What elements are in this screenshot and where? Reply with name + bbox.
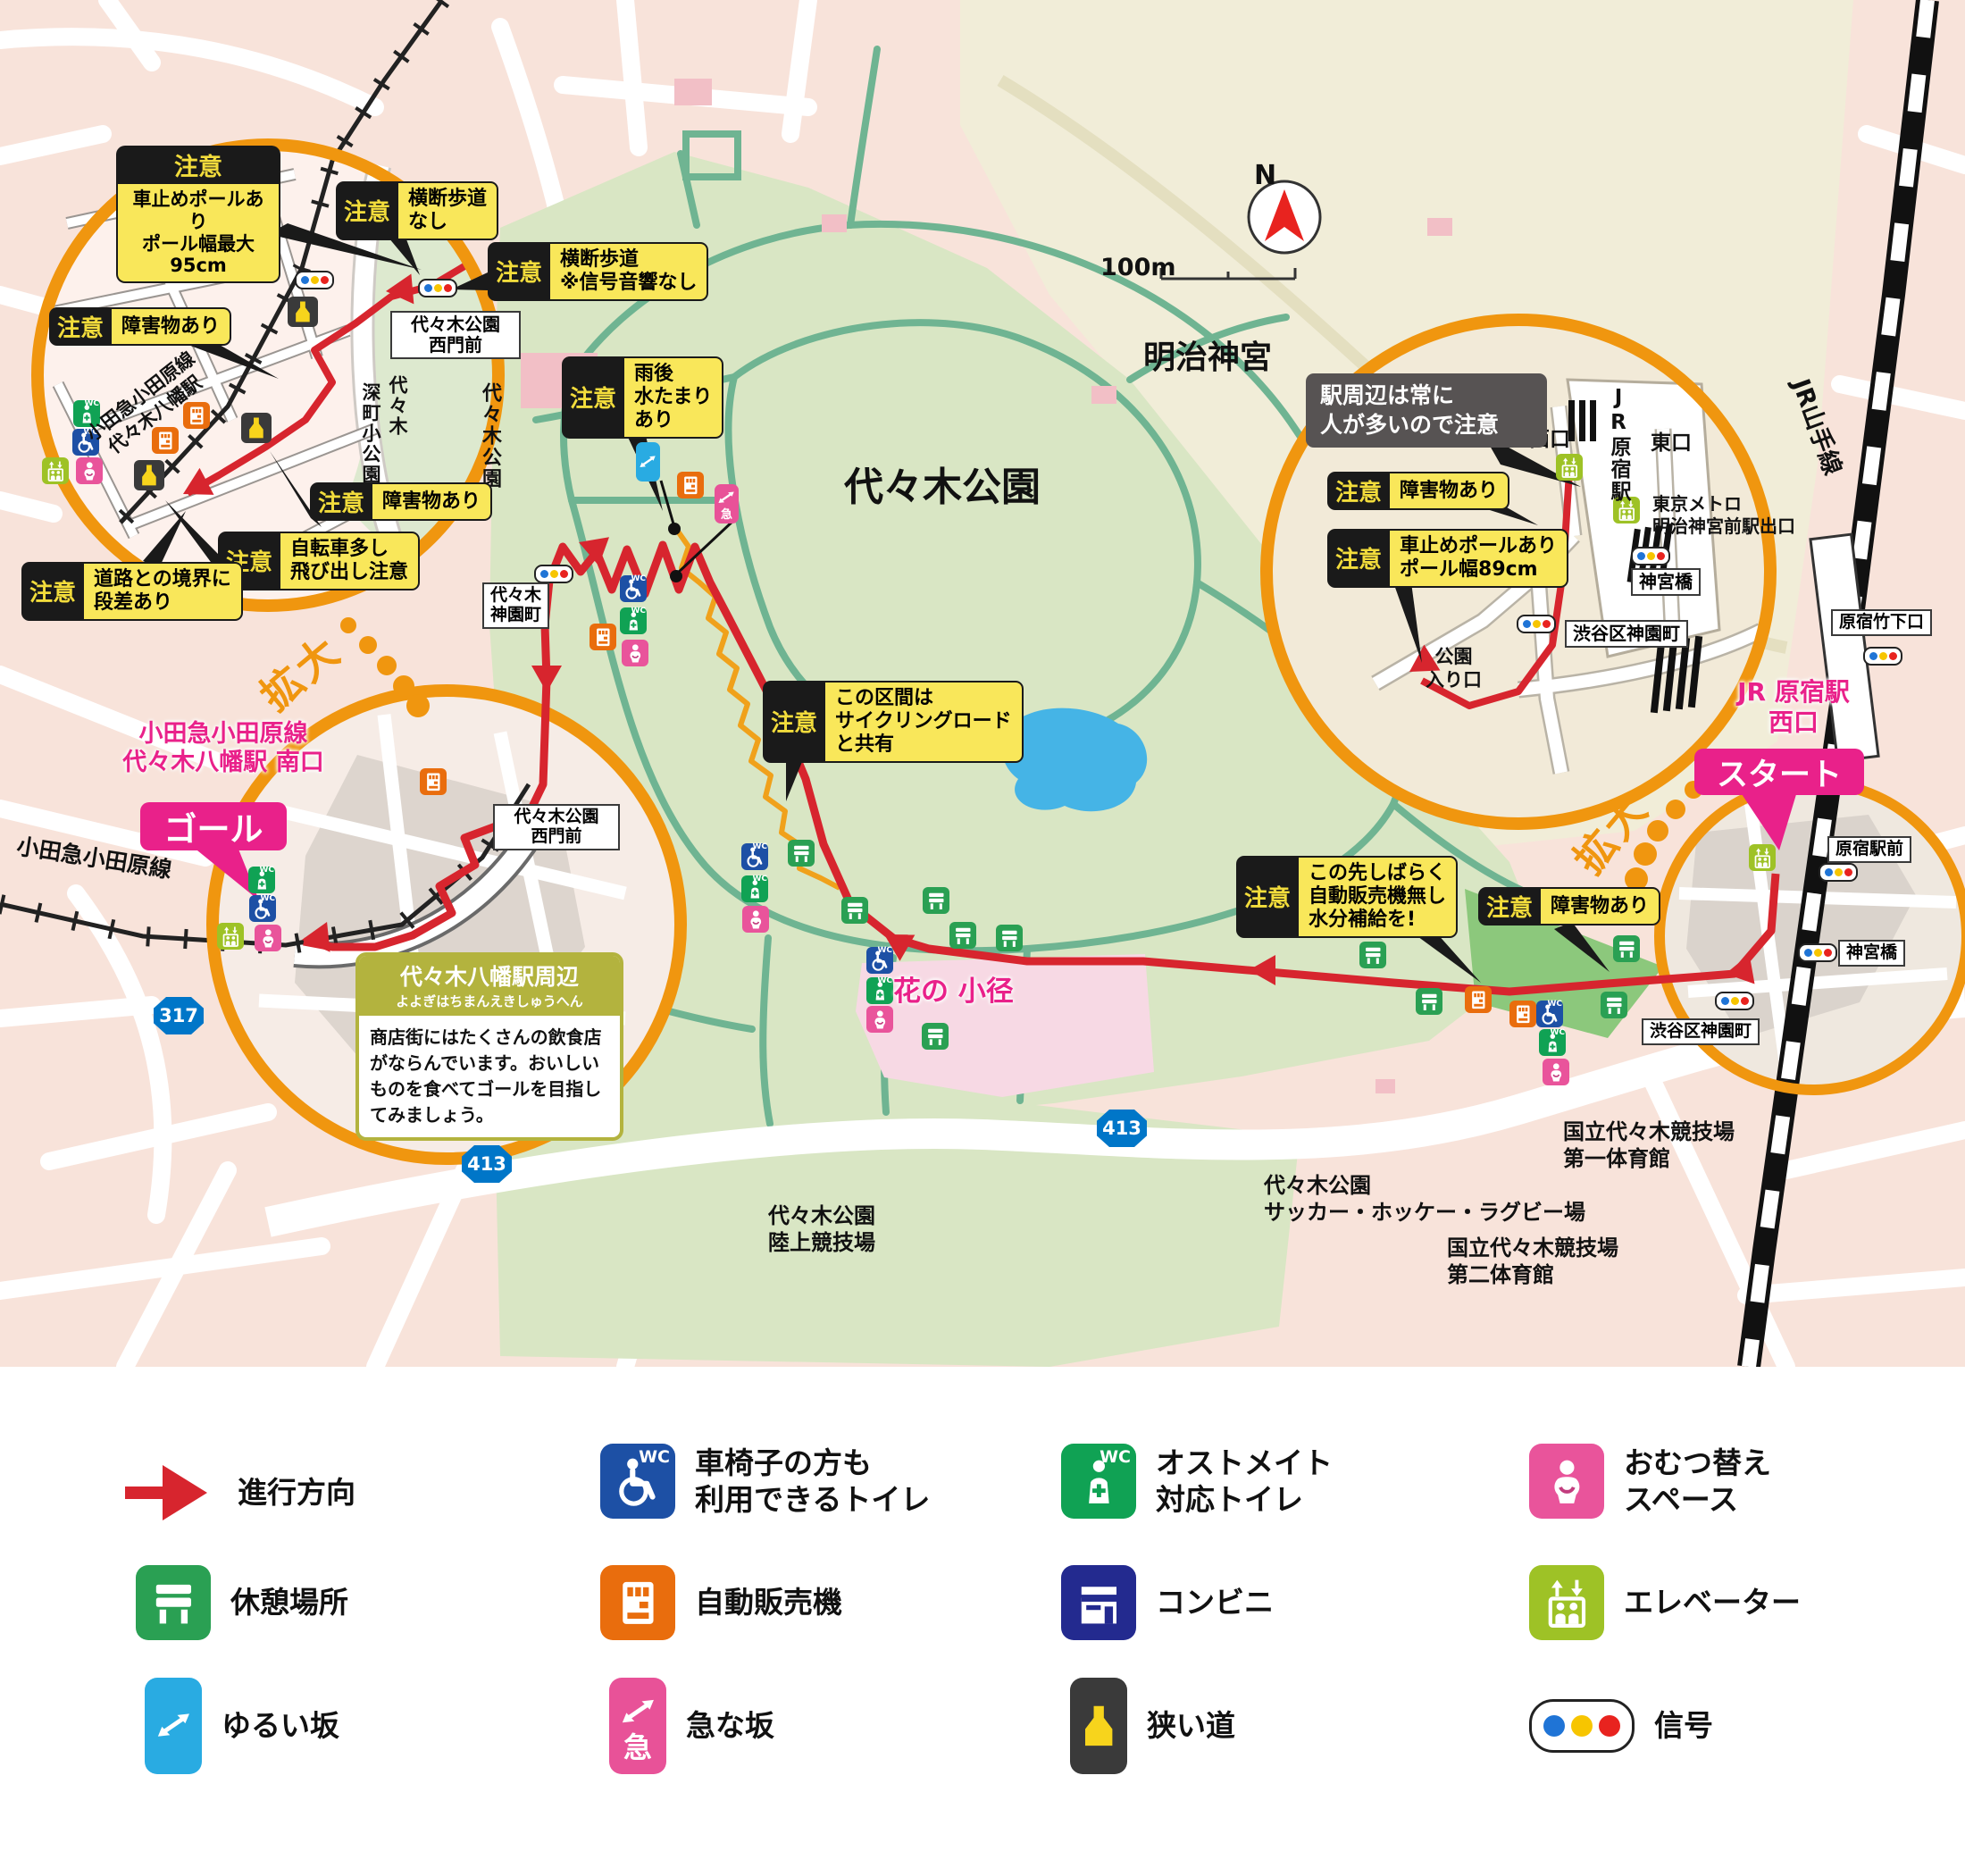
wheelchair-toilet-icon: WC: [741, 843, 768, 870]
vending-machine-icon: [600, 1565, 675, 1640]
jingubashi-box-main: 神宮橋: [1838, 940, 1905, 967]
note-no-crosswalk: 注意 横断歩道 なし: [336, 181, 498, 240]
legend-diaper-space: おむつ替え スペース: [1529, 1444, 1771, 1519]
note-obstacle-left-2: 注意 障害物あり: [310, 482, 492, 521]
vending-machine-icon: [1465, 986, 1492, 1013]
vending-machine-icon: [677, 472, 704, 498]
start-station-label: JR 原宿駅 西口: [1724, 677, 1863, 737]
diaper-space-icon: [76, 457, 103, 484]
legend-wheelchair-toilet: WC 車椅子の方も 利用できるトイレ: [600, 1444, 930, 1519]
rest-area-icon: [996, 925, 1023, 951]
narrow-road-icon: [288, 297, 318, 327]
legend-ostomate-toilet: WC オストメイト 対応トイレ: [1061, 1444, 1333, 1519]
rest-area-icon: [1601, 992, 1627, 1018]
elevator-icon: [1749, 844, 1776, 871]
rest-area-icon: [136, 1565, 211, 1640]
note-no-vending: 注意 この先しばらく 自動販売機無し 水分補給を!: [1236, 856, 1458, 938]
narrow-road-icon: [241, 413, 272, 443]
steep-slope-icon: 急: [715, 484, 739, 523]
note-road-step: 注意 道路との境界に 段差あり: [21, 562, 243, 621]
legend-convenience: コンビニ: [1061, 1565, 1274, 1640]
steep-slope-icon: 急: [609, 1678, 666, 1774]
compass-north-label: N: [1254, 159, 1276, 193]
takeshita-exit-box: 原宿竹下口: [1831, 609, 1932, 636]
legend-steep-slope: 急 急な坂: [609, 1678, 774, 1774]
shibuya-kamizono-box-main: 渋谷区神園町: [1642, 1018, 1760, 1045]
legend-rest-area: 休憩場所: [136, 1565, 348, 1640]
info-kana: よよぎはちまんえきしゅうへん: [361, 992, 618, 1010]
traffic-signal-icon: [1863, 647, 1902, 666]
traffic-signal-icon: [534, 565, 573, 583]
yoyogi-hachiman-info-box: 代々木八幡駅周辺 よよぎはちまんえきしゅうへん 商店街にはたくさんの飲食店がなら…: [355, 952, 623, 1141]
vending-machine-icon: [183, 402, 210, 429]
yoyogi-fukamachi-label-1: 代々木: [384, 375, 411, 437]
yoyogi-park-side-label: 代々木公園: [475, 382, 504, 490]
crowd-warning-box: 駅周辺は常に 人が多いので注意: [1306, 373, 1547, 448]
legend-elevator: エレベーター: [1529, 1565, 1801, 1640]
info-body: 商店街にはたくさんの飲食店がならんでいます。おいしいものを食べてゴールを目指して…: [359, 1016, 620, 1137]
gym1-label: 国立代々木競技場 第一体育館: [1563, 1118, 1735, 1172]
diaper-space-icon: [866, 1006, 893, 1033]
traffic-signal-icon: [1715, 992, 1754, 1010]
yoyogi-fukamachi-label-2: 深町小公園: [357, 382, 384, 485]
shibuya-kamizono-box-circle: 渋谷区神園町: [1565, 620, 1688, 648]
soccer-field-label: 代々木公園 サッカー・ホッケー・ラグビー場: [1264, 1172, 1585, 1226]
diaper-space-icon: [255, 925, 281, 951]
goal-station-label: 小田急小田原線 代々木八幡駅 南口: [100, 720, 347, 778]
note-obstacle-left-1: 注意 障害物あり: [49, 307, 231, 346]
jingubashi-box-circle: 神宮橋: [1631, 568, 1701, 596]
legend-narrow-road: 狭い道: [1070, 1678, 1235, 1774]
traffic-signal-icon: [1819, 863, 1858, 882]
note-bicycles: 注意 自転車多し 飛び出し注意: [218, 532, 420, 590]
legend-signal: 信号: [1529, 1699, 1713, 1753]
route-413-shield-east: 413: [1097, 1110, 1147, 1147]
tokyo-metro-exit-label: 東京メトロ 明治神宮前駅出口: [1652, 493, 1795, 538]
goal-box: ゴール: [140, 802, 287, 850]
vending-machine-icon: [1509, 1001, 1536, 1027]
traffic-signal-icon: [1529, 1699, 1635, 1753]
note-obstacle-main: 注意 障害物あり: [1478, 887, 1660, 925]
narrow-road-icon: [1070, 1678, 1127, 1774]
barrier-free-route-map: N 100m 明治神宮 代々木公園 JR山手線 小田急小田原線 花の 小径 代々…: [0, 0, 1965, 1876]
yoyogi-kamizono-box: 代々木 神園町: [482, 582, 549, 629]
park-entrance-label: 公園 入り口: [1426, 645, 1482, 692]
elevator-icon: [42, 457, 69, 484]
ostomate-toilet-icon: WC: [248, 867, 275, 893]
vending-machine-icon: [420, 768, 447, 795]
rest-area-icon: [841, 897, 868, 924]
direction-arrow-icon: [125, 1465, 218, 1520]
harajuku-ekimae-box: 原宿駅前: [1827, 836, 1911, 863]
ostomate-toilet-icon: WC: [1061, 1444, 1136, 1519]
rest-area-icon: [949, 922, 976, 949]
ostomate-toilet-icon: WC: [1539, 1029, 1566, 1056]
info-title: 代々木八幡駅周辺: [361, 959, 618, 992]
rest-area-icon: [1416, 988, 1442, 1015]
traffic-signal-icon: [418, 279, 457, 297]
diaper-space-icon: [622, 640, 648, 666]
east-exit-label: 東口: [1651, 431, 1692, 456]
gym2-label: 国立代々木競技場 第二体育館: [1447, 1235, 1618, 1288]
wheelchair-toilet-icon: WC: [866, 947, 893, 974]
note-puddle: 注意 雨後 水たまり あり: [562, 356, 723, 439]
ostomate-toilet-icon: WC: [741, 875, 768, 902]
rest-area-icon: [922, 1023, 949, 1050]
legend-vending: 自動販売機: [600, 1565, 842, 1640]
flower-path-label: 花の 小径: [893, 976, 1014, 1009]
meiji-jingu-label: 明治神宮: [1143, 338, 1272, 378]
rest-area-icon: [788, 840, 815, 867]
nishimon-gate-box-main: 代々木公園 西門前: [493, 804, 620, 850]
traffic-signal-icon: [1631, 547, 1670, 565]
ostomate-toilet-icon: WC: [866, 977, 893, 1004]
diaper-space-icon: [1543, 1059, 1569, 1085]
scale-label: 100m: [1100, 253, 1176, 283]
wheelchair-toilet-icon: WC: [620, 575, 647, 602]
gentle-slope-icon: [636, 442, 660, 482]
route-317-shield: 317: [154, 997, 204, 1034]
note-crosswalk-no-sound: 注意 横断歩道 ※信号音響なし: [488, 242, 708, 301]
wheelchair-toilet-icon: WC: [249, 895, 276, 922]
traffic-signal-icon: [1517, 615, 1556, 633]
diaper-space-icon: [742, 906, 769, 933]
note-cycling-road: 注意 この区間は サイクリングロード と共有: [763, 681, 1024, 763]
note-obstacle-right-circle: 注意 障害物あり: [1327, 472, 1509, 510]
rest-area-icon: [1359, 942, 1386, 968]
wheelchair-toilet-icon: WC: [1536, 1001, 1563, 1027]
diaper-space-icon: [1529, 1444, 1604, 1519]
narrow-road-icon: [134, 460, 164, 490]
wheelchair-toilet-icon: WC: [600, 1444, 675, 1519]
note-car-stop-pole-95: 注意 車止めポールあり ポール幅最大95cm: [116, 146, 280, 283]
traffic-signal-icon: [295, 271, 334, 289]
nishimon-gate-box-circle: 代々木公園 西門前: [390, 311, 521, 359]
elevator-icon: [1556, 454, 1583, 481]
yoyogi-park-label: 代々木公園: [844, 463, 1041, 512]
vending-machine-icon: [589, 624, 616, 650]
start-box: スタート: [1694, 749, 1864, 795]
ostomate-toilet-icon: WC: [620, 607, 647, 634]
vending-machine-icon: [152, 427, 179, 454]
traffic-signal-icon: [1798, 943, 1837, 962]
elevator-icon: [217, 923, 244, 950]
legend-gentle-slope: ゆるい坂: [145, 1678, 339, 1774]
convenience-store-icon: [1061, 1565, 1136, 1640]
gentle-slope-icon: [145, 1678, 202, 1774]
jr-harajuku-station-label: JR原宿駅: [1603, 386, 1634, 503]
route-413-shield-west: 413: [462, 1145, 512, 1183]
rest-area-icon: [1613, 935, 1640, 962]
rest-area-icon: [923, 887, 949, 914]
note-car-stop-pole-89: 注意 車止めポールあり ポール幅89cm: [1327, 529, 1568, 588]
elevator-icon: [1529, 1565, 1604, 1640]
athletics-field-label: 代々木公園 陸上競技場: [768, 1202, 875, 1256]
legend-direction: 進行方向: [125, 1465, 355, 1520]
